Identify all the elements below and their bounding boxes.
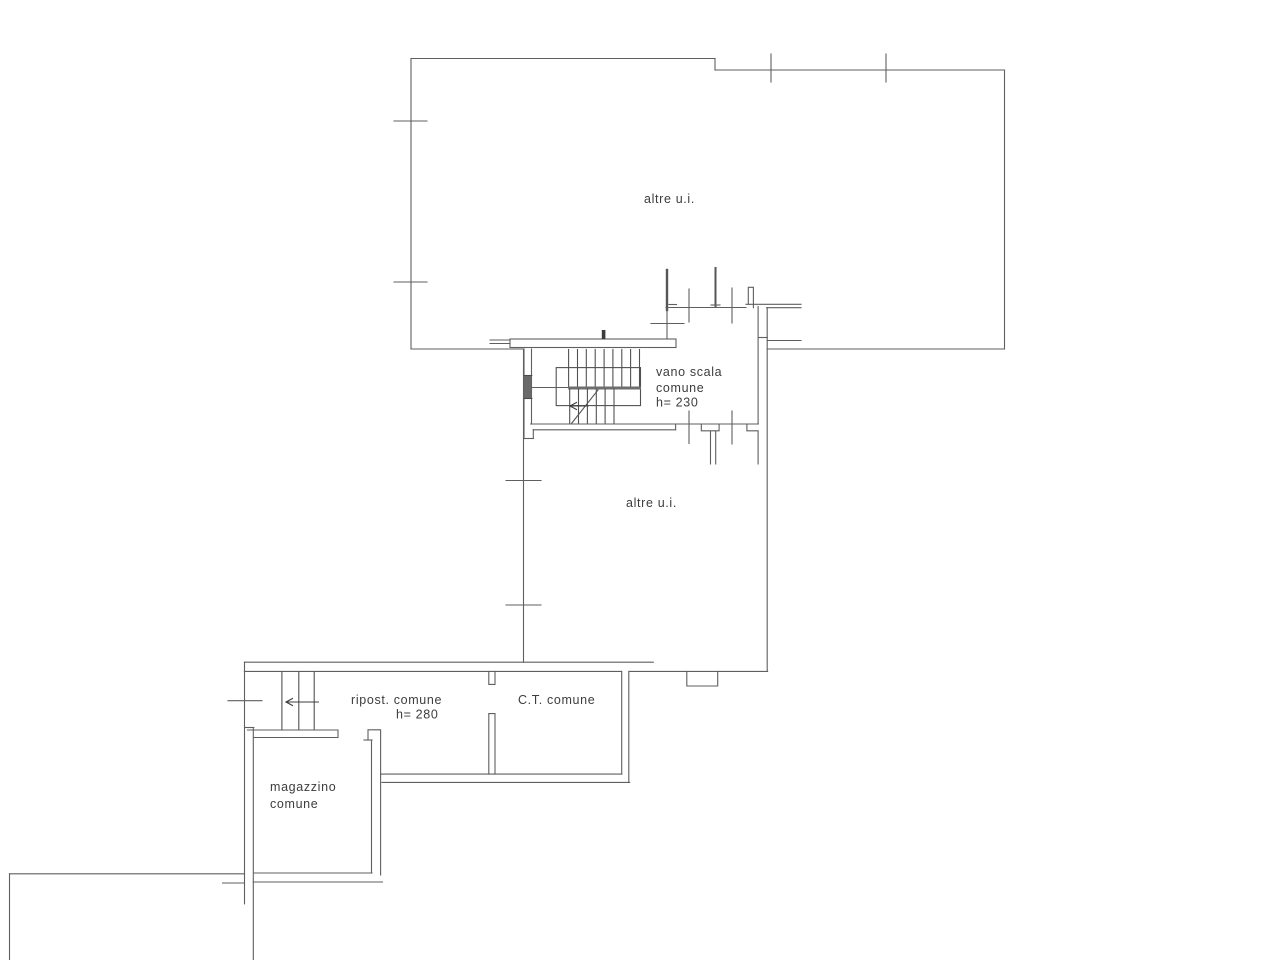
svg-text:comune: comune [656, 381, 704, 395]
svg-text:ripost. comune: ripost. comune [351, 693, 442, 707]
svg-text:altre u.i.: altre u.i. [644, 192, 695, 206]
svg-text:comune: comune [270, 797, 318, 811]
svg-text:altre u.i.: altre u.i. [626, 496, 677, 510]
svg-text:h= 280: h= 280 [396, 708, 438, 722]
svg-text:C.T. comune: C.T. comune [518, 693, 595, 707]
svg-text:vano scala: vano scala [656, 365, 722, 379]
svg-text:h= 230: h= 230 [656, 396, 698, 410]
svg-text:magazzino: magazzino [270, 780, 336, 794]
